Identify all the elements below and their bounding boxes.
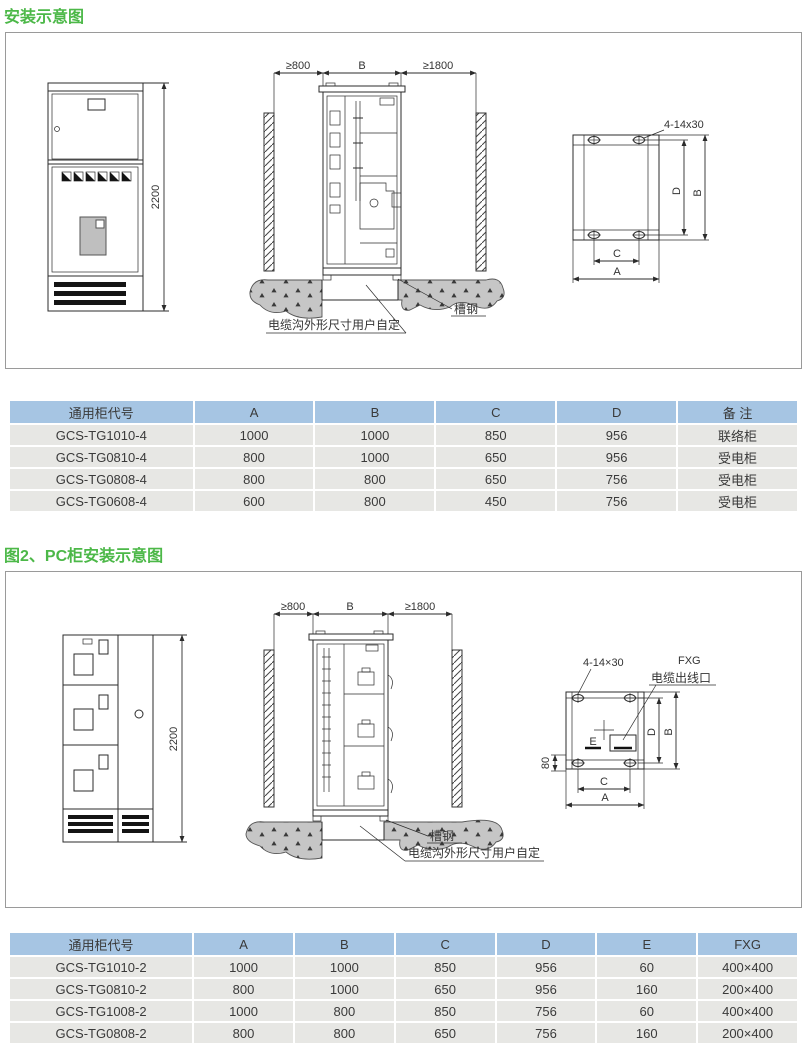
col-header: 通用柜代号	[10, 933, 192, 955]
fig1-cabinet-front-view: 2200	[48, 83, 169, 311]
cell: 800	[295, 1023, 394, 1043]
fig1-dim-mid-label: B	[358, 60, 365, 72]
col-header: 备 注	[678, 401, 797, 423]
cell: 400×400	[698, 957, 797, 977]
cell: 956	[557, 447, 676, 467]
fig1-dim-b-label: B	[692, 189, 704, 196]
fig2-install-side-view: ≥800 B ≥1800	[246, 601, 544, 861]
table-header-row: 通用柜代号 A B C D E FXG	[10, 933, 797, 955]
trench-wall-left	[264, 113, 274, 271]
col-header: C	[436, 401, 555, 423]
cell: GCS-TG0810-2	[10, 979, 192, 999]
cell: GCS-TG0808-2	[10, 1023, 192, 1043]
cell: 800	[195, 447, 314, 467]
section2-title: 图2、PC柜安装示意图	[0, 539, 807, 564]
cell: 1000	[315, 425, 434, 445]
cabinet-side-section	[319, 83, 405, 280]
cell: 800	[195, 469, 314, 489]
cell: 联络柜	[678, 425, 797, 445]
cell: 850	[436, 425, 555, 445]
cell: 1000	[315, 447, 434, 467]
fig2-dim-a-label: A	[601, 792, 609, 804]
cable-trench	[322, 280, 398, 300]
cell: GCS-TG1008-2	[10, 1001, 192, 1021]
col-header: 通用柜代号	[10, 401, 193, 423]
table-row: GCS-TG1010-2 1000 1000 850 956 60 400×40…	[10, 957, 797, 977]
col-header: A	[195, 401, 314, 423]
trench-wall-left	[264, 650, 274, 807]
cabinet-side-section	[309, 631, 393, 821]
cell: 1000	[194, 1001, 293, 1021]
channel-steel-label: 槽钢	[430, 829, 454, 843]
fig2-dim-80-label: 80	[540, 757, 552, 769]
cable-outlet-label: 电缆出线口	[651, 671, 711, 685]
cell: 756	[557, 469, 676, 489]
indicator-squares	[62, 172, 131, 181]
table-row: GCS-TG0808-4 800 800 650 756 受电柜	[10, 469, 797, 489]
channel-steel-label: 槽钢	[454, 302, 478, 316]
cell: 650	[396, 979, 495, 999]
fig1-mounting-top-view: 4-14x30 D B C A	[573, 119, 709, 283]
cell: 400×400	[698, 1001, 797, 1021]
col-header: FXG	[698, 933, 797, 955]
trench-wall-right	[476, 113, 486, 271]
table-row: GCS-TG0608-4 600 800 450 756 受电柜	[10, 491, 797, 511]
cell: 850	[396, 957, 495, 977]
cell: GCS-TG0810-4	[10, 447, 193, 467]
cell: 受电柜	[678, 491, 797, 511]
fig2-dim-d-label: D	[646, 728, 658, 736]
trench-label: 电缆沟外形尺寸用户自定	[268, 317, 400, 332]
cell: 160	[597, 1023, 696, 1043]
cell: 受电柜	[678, 447, 797, 467]
fig2-table: 通用柜代号 A B C D E FXG GCS-TG1010-2 1000 10…	[8, 931, 799, 1045]
table-row: GCS-TG1010-4 1000 1000 850 956 联络柜	[10, 425, 797, 445]
fig1-installation-diagram: 2200 ≥800 B ≥1800	[6, 33, 799, 368]
cell: 450	[436, 491, 555, 511]
col-header: D	[557, 401, 676, 423]
fig1-dim-right-label: ≥1800	[423, 60, 454, 72]
cell: 800	[295, 1001, 394, 1021]
fig2-bolt-label: 4-14×30	[583, 657, 624, 669]
cell: 650	[436, 447, 555, 467]
cell: 800	[315, 469, 434, 489]
cell: 160	[597, 979, 696, 999]
cell: 60	[597, 957, 696, 977]
drawer-breaker-units	[358, 668, 392, 793]
fig1-install-side-view: ≥800 B ≥1800	[250, 60, 504, 333]
cell: 956	[557, 425, 676, 445]
cell: GCS-TG0608-4	[10, 491, 193, 511]
cell: 1000	[295, 957, 394, 977]
cell: 1000	[295, 979, 394, 999]
cell: 200×400	[698, 979, 797, 999]
col-header: A	[194, 933, 293, 955]
ventilation-louvers	[54, 282, 126, 305]
bolt-holes	[587, 135, 646, 240]
table-header-row: 通用柜代号 A B C D 备 注	[10, 401, 797, 423]
cell: 60	[597, 1001, 696, 1021]
ventilation-louvers	[68, 815, 149, 833]
fig2-dim-e-label: E	[589, 736, 596, 748]
fig1-table: 通用柜代号 A B C D 备 注 GCS-TG1010-4 1000 1000…	[8, 399, 799, 513]
cell: 800	[194, 979, 293, 999]
fig2-height-dim-label: 2200	[168, 727, 180, 751]
section1-title: 安装示意图	[0, 0, 807, 25]
col-header: B	[315, 401, 434, 423]
fig2-dim-b-label: B	[663, 728, 675, 735]
cell: 756	[497, 1023, 596, 1043]
fig2-dim-mid-label: B	[346, 601, 353, 613]
cell: 956	[497, 979, 596, 999]
cell: 650	[396, 1023, 495, 1043]
col-header: E	[597, 933, 696, 955]
fig2-dim-left-label: ≥800	[281, 601, 305, 613]
cell: GCS-TG0808-4	[10, 469, 193, 489]
cell: 600	[195, 491, 314, 511]
col-header: C	[396, 933, 495, 955]
cell: 800	[315, 491, 434, 511]
fig1-dim-a-label: A	[613, 266, 621, 278]
fig2-mounting-top-view: E 4-14×30 FXG 电缆出线口 80 D B C A	[540, 655, 716, 809]
table-row: GCS-TG0810-2 800 1000 650 956 160 200×40…	[10, 979, 797, 999]
fig1-dim-c-label: C	[613, 248, 621, 260]
table-row: GCS-TG0810-4 800 1000 650 956 受电柜	[10, 447, 797, 467]
col-header: B	[295, 933, 394, 955]
cell: 956	[497, 957, 596, 977]
cell: 受电柜	[678, 469, 797, 489]
cell: 200×400	[698, 1023, 797, 1043]
cell: 1000	[195, 425, 314, 445]
trench-wall-right	[452, 650, 462, 807]
cell: 850	[396, 1001, 495, 1021]
col-header: D	[497, 933, 596, 955]
cell: 800	[194, 1023, 293, 1043]
fig2-dim-right-label: ≥1800	[405, 601, 436, 613]
cell: 756	[557, 491, 676, 511]
fig1-dim-d-label: D	[671, 187, 683, 195]
fxg-label: FXG	[678, 655, 701, 667]
fig2-installation-diagram: 2200 ≥800 B ≥1800	[6, 572, 799, 907]
fig2-diagram-box: 2200 ≥800 B ≥1800	[5, 571, 802, 908]
fig1-dim-left-label: ≥800	[286, 60, 310, 72]
cell: 650	[436, 469, 555, 489]
cell: GCS-TG1010-2	[10, 957, 192, 977]
fig1-height-dim-label: 2200	[150, 185, 162, 209]
fig2-cabinet-front-view: 2200	[63, 635, 187, 842]
table-row: GCS-TG1008-2 1000 800 850 756 60 400×400	[10, 1001, 797, 1021]
cell: 756	[497, 1001, 596, 1021]
fig2-dim-c-label: C	[600, 776, 608, 788]
fig1-diagram-box: 2200 ≥800 B ≥1800	[5, 32, 802, 369]
cell: GCS-TG1010-4	[10, 425, 193, 445]
trench-label: 电缆沟外形尺寸用户自定	[408, 845, 540, 860]
cell: 1000	[194, 957, 293, 977]
table-row: GCS-TG0808-2 800 800 650 756 160 200×400	[10, 1023, 797, 1043]
fig1-bolt-label: 4-14x30	[664, 119, 704, 131]
